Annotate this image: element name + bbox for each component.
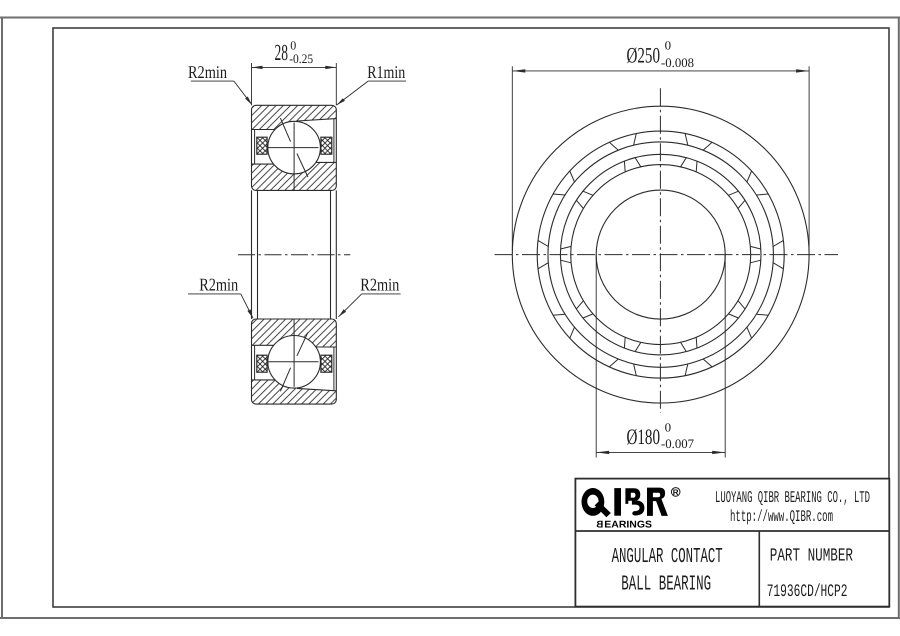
svg-text:PART NUMBER: PART NUMBER xyxy=(770,545,853,566)
svg-text:R2min: R2min xyxy=(360,275,399,295)
svg-text:BALL BEARING: BALL BEARING xyxy=(621,573,711,597)
svg-text:ANGULAR CONTACT: ANGULAR CONTACT xyxy=(612,545,723,569)
svg-text:R2min: R2min xyxy=(199,275,238,295)
svg-text:R1min: R1min xyxy=(367,62,405,82)
svg-text:71936CD/HCP2: 71936CD/HCP2 xyxy=(767,582,848,602)
svg-text:-0.008: -0.008 xyxy=(661,55,694,70)
svg-text:-0.25: -0.25 xyxy=(289,51,313,66)
svg-text:28: 28 xyxy=(275,40,289,65)
svg-text:http://www.QIBR.com: http://www.QIBR.com xyxy=(730,508,833,526)
svg-text:Ø250: Ø250 xyxy=(627,43,661,68)
svg-text:-0.007: -0.007 xyxy=(661,436,694,451)
svg-text:Ø180: Ø180 xyxy=(627,424,661,449)
svg-text:R: R xyxy=(673,488,679,497)
svg-text:LUOYANG QIBR BEARING CO., LTD: LUOYANG QIBR BEARING CO., LTD xyxy=(715,488,870,507)
svg-text:EARINGS: EARINGS xyxy=(604,520,652,531)
svg-text:0: 0 xyxy=(665,39,672,53)
svg-text:R2min: R2min xyxy=(188,62,227,82)
svg-text:B: B xyxy=(596,520,603,531)
svg-text:0: 0 xyxy=(665,421,672,435)
